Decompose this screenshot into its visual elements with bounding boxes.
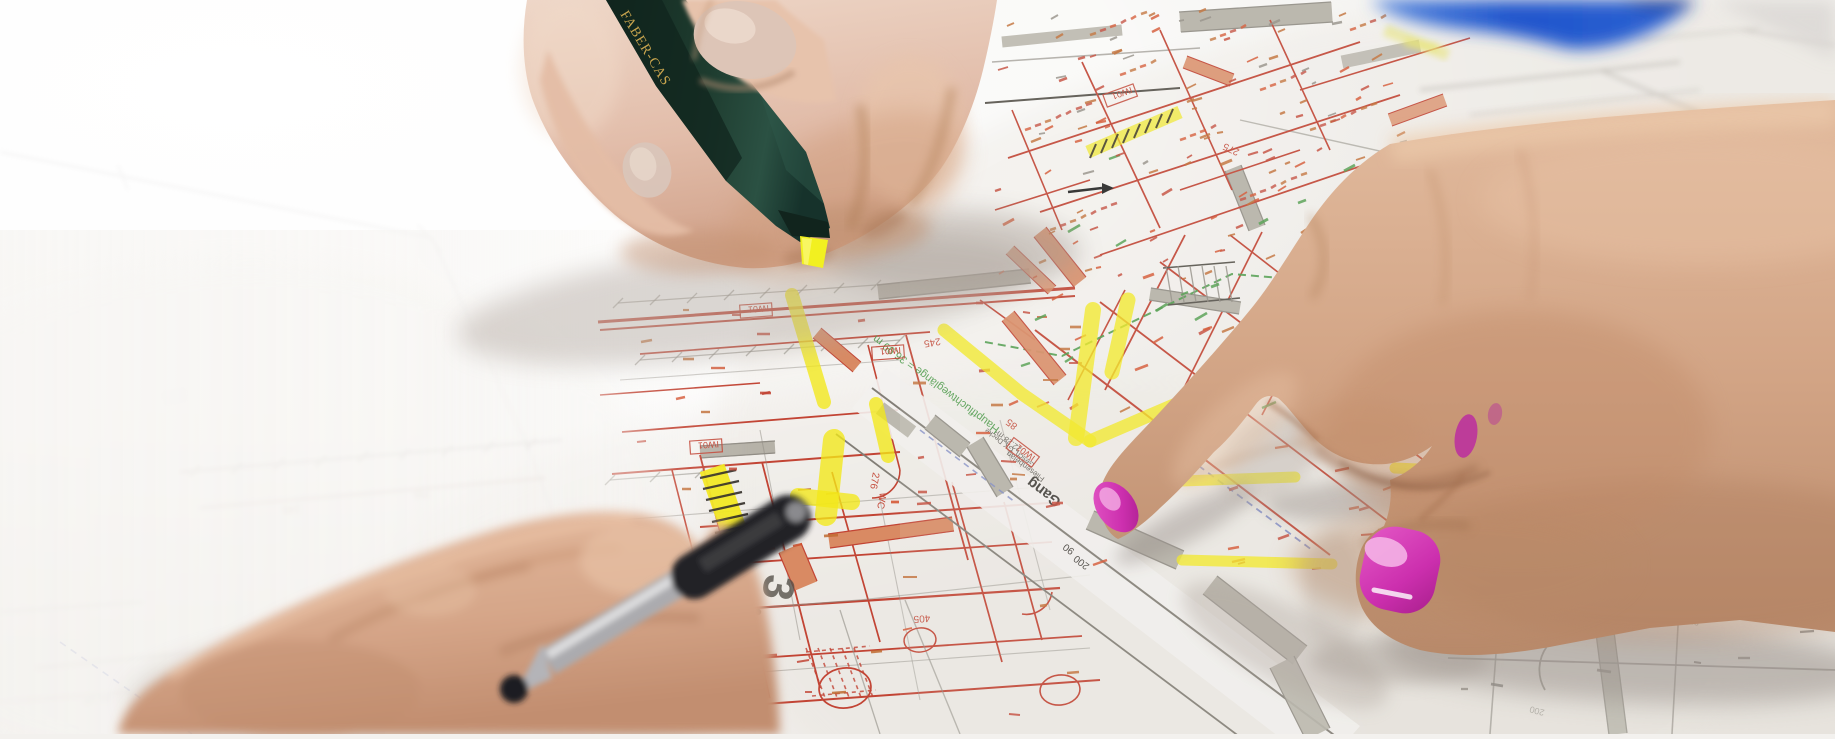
svg-text:IW01: IW01 xyxy=(880,345,902,356)
